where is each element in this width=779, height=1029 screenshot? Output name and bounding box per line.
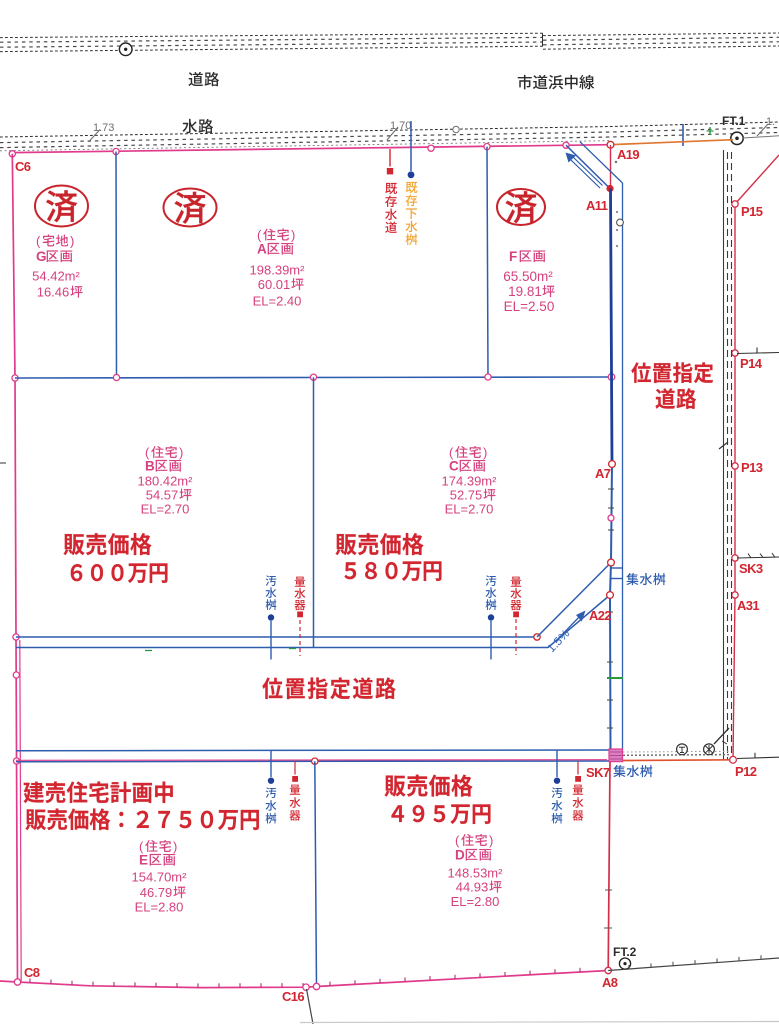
svg-text:EL=2.40: EL=2.40 (253, 294, 302, 309)
svg-text:52.75: 52.75 (450, 488, 483, 503)
svg-text:P13: P13 (741, 460, 763, 475)
svg-text:B: B (145, 459, 155, 474)
svg-text:1.70: 1.70 (390, 120, 411, 132)
svg-text:EL=2.70: EL=2.70 (445, 502, 494, 517)
svg-text:EL=2.80: EL=2.80 (135, 900, 184, 915)
svg-text:): ) (483, 445, 487, 460)
svg-text:16.46: 16.46 (37, 285, 70, 300)
svg-text:D: D (455, 848, 465, 863)
svg-text:C: C (449, 459, 459, 474)
svg-text:44.93: 44.93 (456, 880, 489, 895)
svg-text:19.81: 19.81 (508, 284, 542, 299)
svg-text:54.42m²: 54.42m² (32, 269, 80, 284)
svg-text:): ) (179, 445, 183, 460)
svg-text:148.53m²: 148.53m² (448, 866, 504, 881)
svg-text:A22: A22 (589, 608, 611, 623)
svg-text:1.: 1. (766, 116, 775, 128)
svg-text:C16: C16 (282, 989, 304, 1004)
svg-text:P12: P12 (735, 764, 757, 779)
svg-text:54.57: 54.57 (146, 488, 179, 503)
svg-text:FT.1: FT.1 (722, 114, 746, 128)
svg-text:): ) (291, 228, 295, 243)
svg-text:): ) (70, 234, 74, 249)
svg-text:(: ( (257, 228, 262, 243)
svg-text:): ) (173, 839, 177, 854)
svg-text:60.01: 60.01 (258, 277, 291, 292)
svg-text:F: F (509, 249, 517, 264)
svg-text:154.70m²: 154.70m² (132, 870, 188, 885)
svg-text:E: E (139, 853, 148, 868)
svg-text:65.50m²: 65.50m² (503, 269, 553, 284)
svg-text:EL=2.70: EL=2.70 (141, 502, 190, 517)
svg-text:1.5%: 1.5% (546, 628, 573, 655)
svg-text:EL=2.80: EL=2.80 (451, 894, 500, 909)
svg-text:A7: A7 (595, 466, 611, 481)
svg-text:A: A (257, 242, 267, 257)
svg-text:): ) (489, 833, 493, 848)
svg-text:SK3: SK3 (739, 561, 763, 576)
svg-text:(: ( (36, 234, 41, 249)
svg-text:180.42m²: 180.42m² (138, 474, 194, 489)
svg-text:46.79: 46.79 (140, 885, 173, 900)
svg-text:A8: A8 (602, 975, 618, 990)
svg-text:C8: C8 (24, 965, 40, 980)
svg-text:198.39m²: 198.39m² (250, 263, 306, 278)
svg-text:P15: P15 (741, 204, 763, 219)
svg-text:P14: P14 (740, 356, 763, 371)
svg-text:A11: A11 (586, 198, 608, 213)
svg-text:174.39m²: 174.39m² (442, 474, 498, 489)
svg-text:1.73: 1.73 (93, 122, 114, 134)
svg-text:A31: A31 (737, 598, 759, 613)
svg-text:G: G (36, 249, 47, 264)
svg-text:EL=2.50: EL=2.50 (504, 299, 555, 314)
svg-text:FT.2: FT.2 (613, 945, 637, 959)
svg-text:A19: A19 (617, 147, 639, 162)
svg-text:C6: C6 (15, 159, 31, 174)
svg-text:SK7: SK7 (586, 765, 610, 780)
svg-text:(: ( (455, 833, 460, 848)
